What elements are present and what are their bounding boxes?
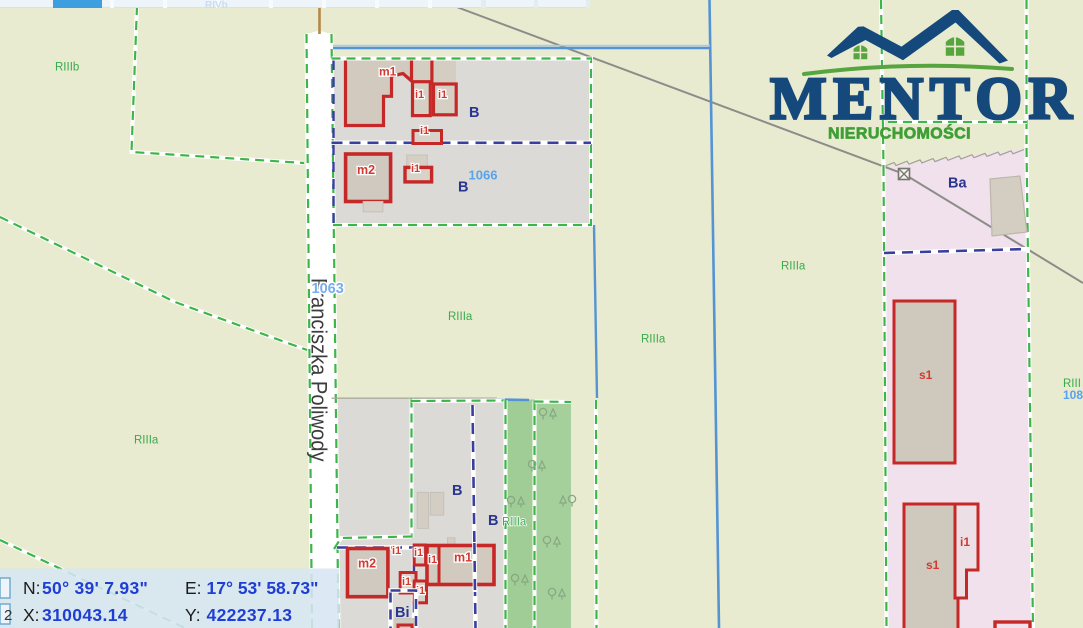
svg-text:i1: i1 [428, 554, 437, 566]
svg-text:B: B [458, 180, 468, 196]
svg-text:RIIIa: RIIIa [502, 517, 527, 529]
svg-text:1085: 1085 [1063, 388, 1083, 402]
svg-text:RIVb: RIVb [205, 0, 228, 11]
svg-text:m1: m1 [454, 551, 472, 565]
svg-text:310043.14: 310043.14 [42, 605, 128, 625]
svg-text:RIIIa: RIIIa [448, 311, 473, 323]
svg-text:B: B [488, 513, 498, 529]
svg-text:1066: 1066 [469, 168, 498, 183]
svg-text:N:: N: [23, 578, 41, 598]
svg-text:Franciszka Poliwody: Franciszka Poliwody [306, 278, 330, 462]
svg-text:17° 53' 58.73": 17° 53' 58.73" [207, 578, 319, 598]
svg-text:i1: i1 [402, 576, 411, 588]
svg-text:NIERUCHOMOŚCI: NIERUCHOMOŚCI [828, 124, 971, 143]
svg-text:i1: i1 [415, 89, 424, 101]
svg-text:RIIIa: RIIIa [641, 334, 666, 346]
svg-text:1063: 1063 [312, 281, 344, 297]
svg-text:i1: i1 [411, 163, 420, 175]
svg-text:50° 39' 7.93": 50° 39' 7.93" [42, 578, 148, 598]
svg-text:i1: i1 [414, 547, 423, 559]
svg-text:i1: i1 [438, 89, 447, 101]
svg-text:E:: E: [185, 578, 202, 598]
svg-text:s1: s1 [919, 368, 933, 382]
svg-text:s1: s1 [926, 558, 940, 572]
svg-text:B: B [469, 105, 479, 121]
svg-text:i1: i1 [420, 125, 429, 137]
svg-text:Ba: Ba [948, 176, 967, 192]
svg-text:m2: m2 [358, 557, 376, 571]
svg-text:m1: m1 [379, 65, 397, 79]
svg-text:X:: X: [23, 605, 40, 625]
svg-text:Y:: Y: [185, 605, 201, 625]
svg-text:B: B [452, 483, 462, 499]
svg-text:2: 2 [4, 607, 12, 624]
svg-text:RIIIa: RIIIa [781, 261, 806, 273]
svg-text:MENTOR: MENTOR [770, 66, 1079, 132]
svg-text:i1: i1 [960, 535, 970, 549]
svg-text:m2: m2 [357, 163, 375, 177]
svg-text:RIIIa: RIIIa [134, 435, 159, 447]
svg-text:RIIIb: RIIIb [55, 62, 79, 74]
svg-text:i1: i1 [392, 545, 401, 557]
svg-text:422237.13: 422237.13 [207, 605, 293, 625]
